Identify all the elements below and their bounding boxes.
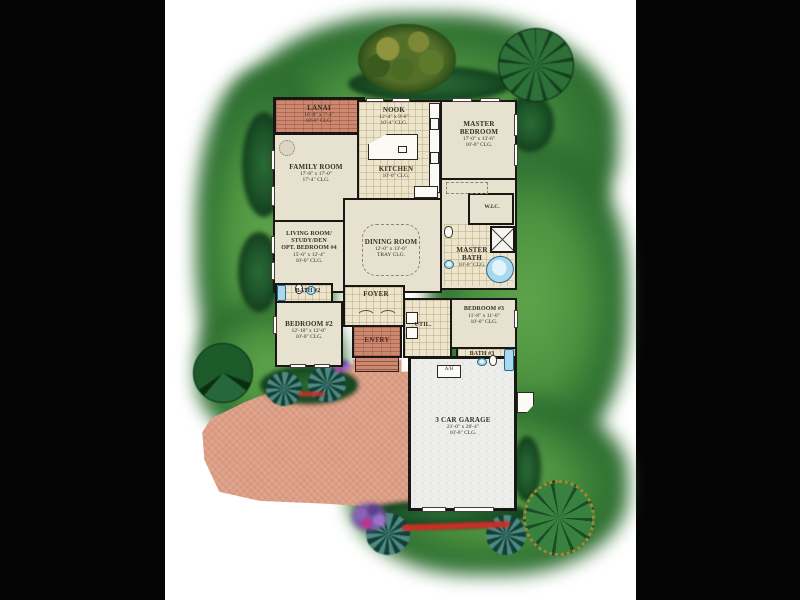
entry-door-arc [378,310,398,326]
label-living-room: LIVING ROOM/ STUDY/DEN OPT. BEDROOM #4 1… [276,231,342,264]
closet-dashed-outline [446,182,488,194]
window [392,98,410,102]
window [366,98,384,102]
window [480,98,500,102]
label-ah: A/H [439,367,459,373]
palm-plant-icon [266,372,302,406]
label-master-bath: MASTER BATH 10'-0" CLG. [452,246,492,268]
window [314,364,330,368]
label-bath3: BATH #3 [462,351,502,358]
window [271,186,275,206]
label-bath2: BATH #2 [288,288,328,295]
window [271,150,275,170]
kitchen-wall-counter [429,103,440,193]
kitchen-sink [398,146,407,153]
window [514,144,518,166]
label-lanai: LANAI 18'-8" x 7'-4" 10'-0" CLG. [283,104,355,125]
label-wic: W.I.C. [474,204,510,210]
window [271,262,275,280]
window [290,364,306,368]
bathtub [504,349,514,371]
label-bedroom3: BEDROOM #3 11'-8" x 11'-0" 10'-0" CLG. [455,306,513,326]
entry-door-arc [356,310,376,326]
refrigerator [430,152,439,164]
entry-steps [355,356,399,372]
bathtub [277,285,286,301]
range-appliance [430,118,439,130]
window [271,236,275,254]
sink [477,358,487,366]
garage-door [422,507,446,512]
label-family-room: FAMILY ROOM 17'-8" x 17'-0" 17'-4" CLG. [280,163,352,184]
planter-icon [279,140,295,156]
shower [490,226,515,253]
pine-tree-icon [498,28,574,102]
label-util: UTIL. [408,322,438,329]
label-nook: NOOK 12'-4" x 9'-6" 10'-4" CLG. [362,106,426,127]
window [452,98,472,102]
label-kitchen: KITCHEN 10'-0" CLG. [368,165,424,179]
purple-flower-bed [348,500,390,534]
label-bedroom2: BEDROOM #2 12'-10" x 12'-0" 10'-0" CLG. [277,320,341,341]
window [514,114,518,136]
site-plan-image: LANAI 18'-8" x 7'-4" 10'-0" CLG. NOOK 12… [0,0,800,600]
kitchen-counter [414,186,438,198]
window [514,310,518,328]
ornamental-tree-icon [523,480,595,556]
round-tree-icon [193,343,253,403]
red-flower-border [298,392,324,396]
label-dining-room: DINING ROOM 12'-0" x 13'-0" TRAY CLG. [360,238,422,259]
label-entry: ENTRY [357,336,397,344]
deciduous-tree-icon [358,24,456,94]
toilet [444,226,453,238]
label-garage: 3 CAR GARAGE 21'-0" x 28'-4" 10'-0" CLG. [428,416,498,437]
label-foyer: FOYER [356,290,396,298]
garage-door [454,507,494,512]
label-master-bedroom: MASTER BEDROOM 17'-0" x 13'-6" 10'-0" CL… [448,120,510,149]
